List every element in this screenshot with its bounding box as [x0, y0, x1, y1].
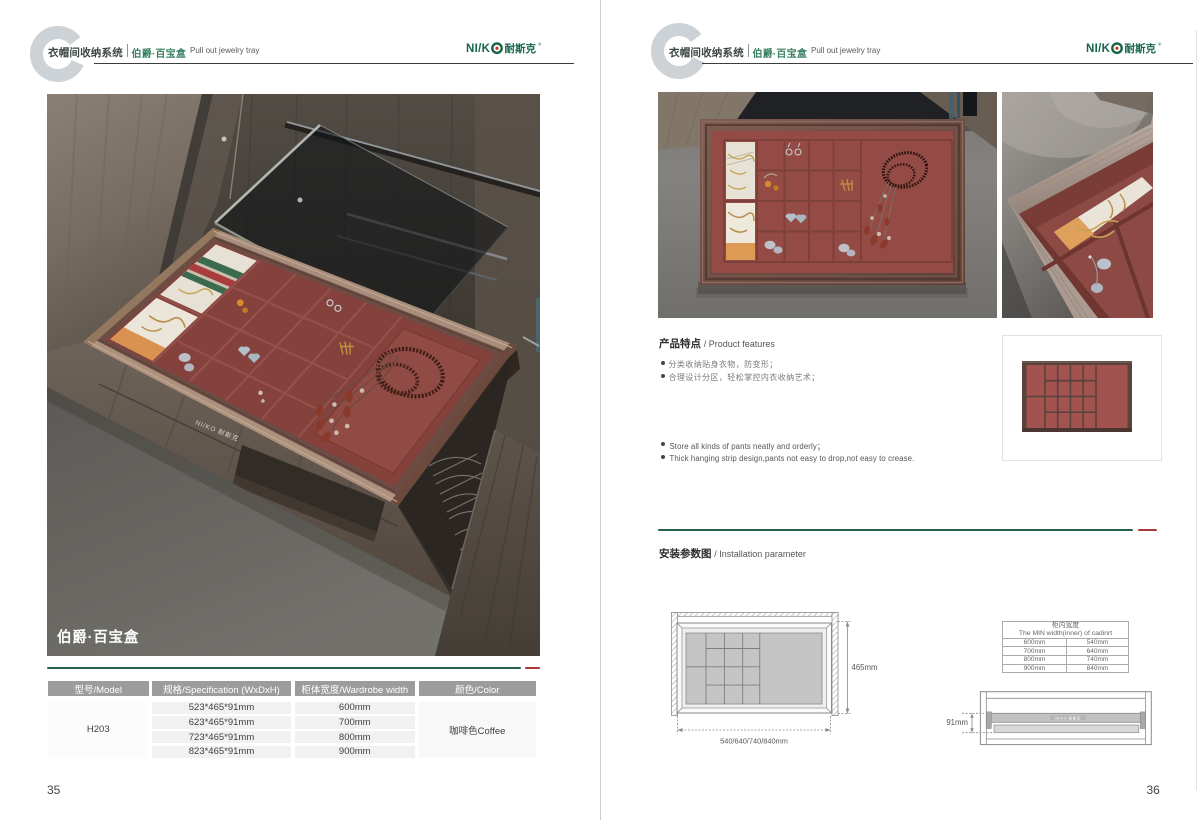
svg-text:91mm: 91mm: [946, 718, 968, 727]
svg-text:®: ®: [1158, 41, 1162, 47]
svg-text:NI/K: NI/K: [1086, 43, 1111, 55]
svg-text:465mm: 465mm: [852, 663, 878, 672]
svg-text:耐斯克: 耐斯克: [505, 42, 537, 55]
svg-text:耐斯克: 耐斯克: [1125, 42, 1157, 55]
svg-text:伯爵·百宝盒: 伯爵·百宝盒: [57, 628, 139, 646]
svg-text:NI/K: NI/K: [466, 43, 491, 55]
svg-text:NI/KO 耐斯克: NI/KO 耐斯克: [1055, 715, 1080, 720]
svg-text:540/640/740/840mm: 540/640/740/840mm: [720, 737, 788, 746]
svg-text:®: ®: [538, 41, 542, 47]
